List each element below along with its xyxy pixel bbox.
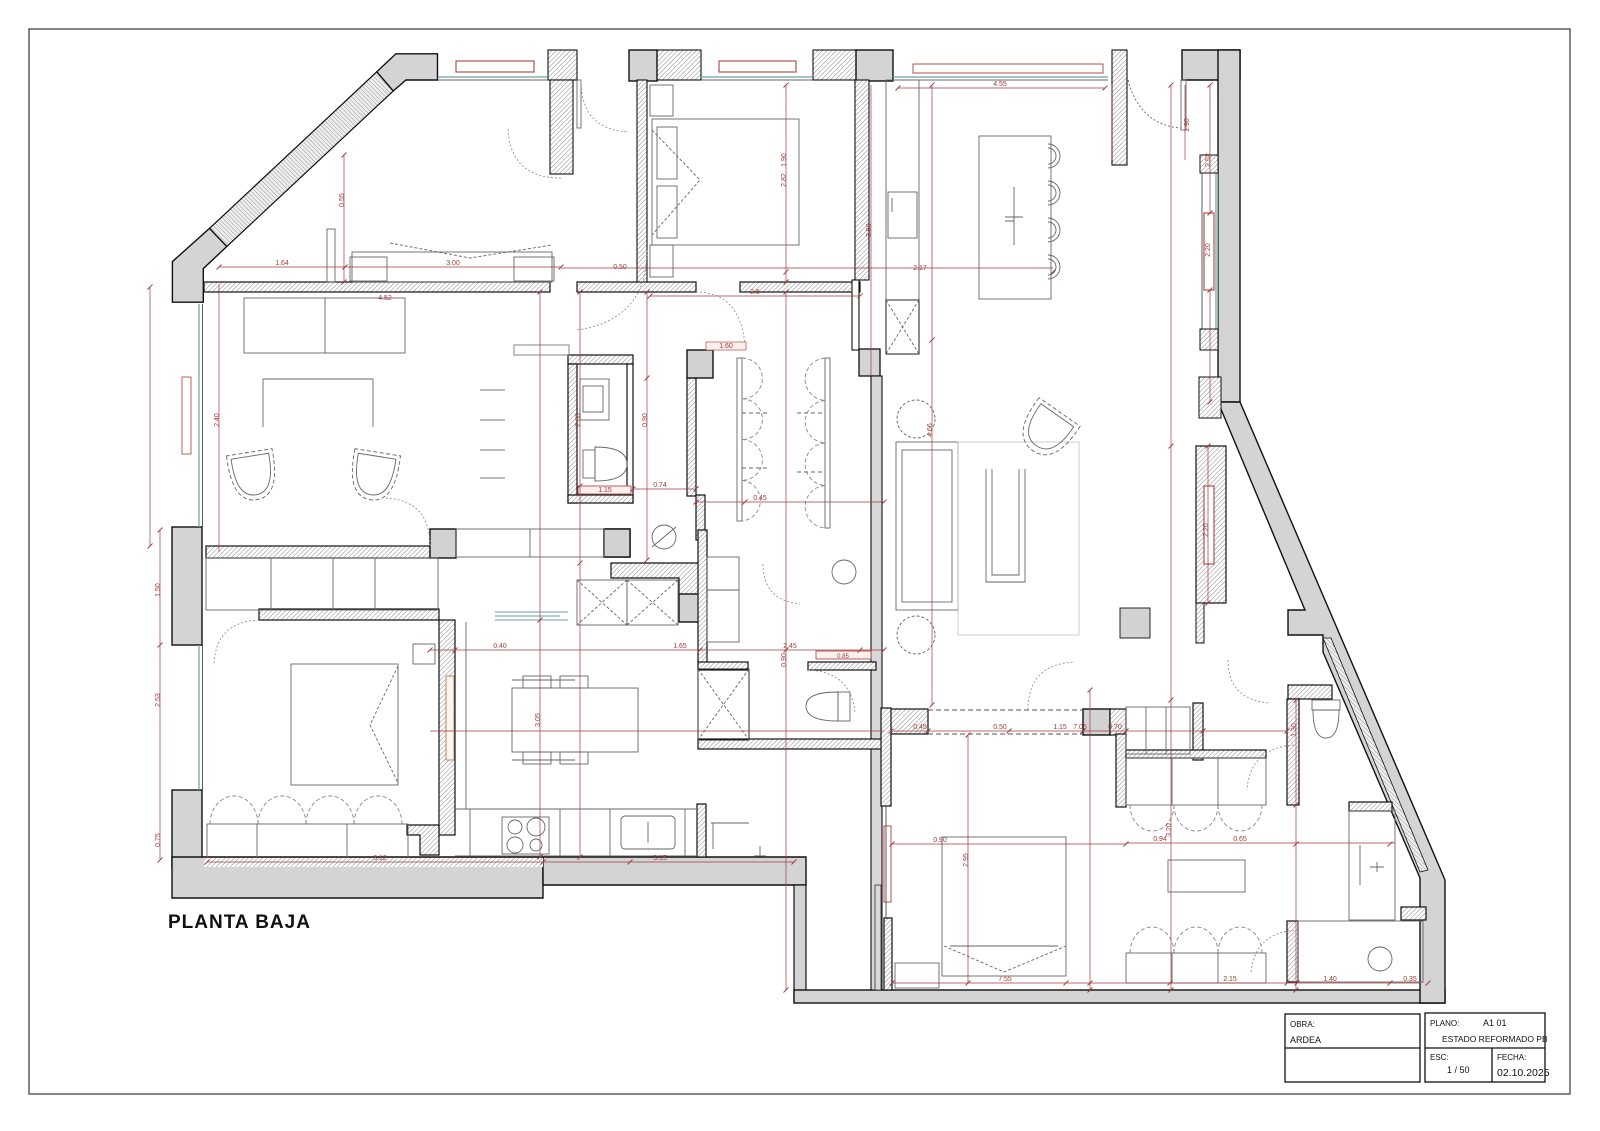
svg-text:2.20: 2.20 (1205, 243, 1212, 257)
svg-text:2.82: 2.82 (781, 173, 788, 187)
svg-text:3.15: 3.15 (653, 855, 667, 862)
svg-text:0.65: 0.65 (1233, 836, 1247, 843)
svg-text:0.45: 0.45 (753, 495, 767, 502)
svg-text:2.20: 2.20 (1203, 523, 1210, 537)
svg-text:2.53: 2.53 (155, 693, 162, 707)
svg-text:3.12: 3.12 (373, 855, 387, 862)
svg-text:1.90: 1.90 (781, 153, 788, 167)
svg-text:4.55: 4.55 (993, 81, 1007, 88)
svg-text:0.94: 0.94 (1153, 836, 1167, 843)
svg-text:0.50: 0.50 (613, 264, 627, 271)
svg-text:0.50: 0.50 (993, 724, 1007, 731)
svg-text:ESC:: ESC: (1430, 1053, 1449, 1062)
svg-text:FECHA:: FECHA: (1497, 1053, 1526, 1062)
svg-text:2.45: 2.45 (783, 643, 797, 650)
svg-text:ESTADO REFORMADO PB: ESTADO REFORMADO PB (1442, 1034, 1548, 1044)
svg-text:4.66: 4.66 (927, 423, 934, 437)
svg-text:2.40: 2.40 (214, 413, 221, 427)
svg-text:2.95: 2.95 (963, 853, 970, 867)
svg-text:3.05: 3.05 (535, 713, 542, 727)
svg-text:0.70: 0.70 (1108, 724, 1122, 731)
svg-text:0.55: 0.55 (339, 193, 346, 207)
svg-text:7.05: 7.05 (1073, 724, 1087, 731)
svg-text:2.17: 2.17 (913, 265, 927, 272)
svg-text:0.45: 0.45 (913, 724, 927, 731)
svg-text:PLANO:: PLANO: (1430, 1019, 1459, 1028)
svg-text:3.20: 3.20 (1166, 823, 1173, 837)
svg-text:1.65: 1.65 (673, 643, 687, 650)
svg-text:1.50: 1.50 (155, 583, 162, 597)
svg-text:0.90: 0.90 (642, 413, 649, 427)
svg-text:1.15: 1.15 (598, 487, 612, 494)
svg-text:3.00: 3.00 (446, 260, 460, 267)
svg-text:OBRA:: OBRA: (1290, 1020, 1315, 1029)
svg-text:1.30: 1.30 (1291, 723, 1298, 737)
svg-text:0.74: 0.74 (653, 482, 667, 489)
svg-text:A1 01: A1 01 (1483, 1018, 1507, 1028)
svg-text:7.55: 7.55 (998, 976, 1012, 983)
svg-text:1.15: 1.15 (1053, 724, 1067, 731)
svg-text:ARDEA: ARDEA (1290, 1035, 1321, 1045)
svg-text:0.40: 0.40 (493, 643, 507, 650)
svg-text:4.52: 4.52 (378, 295, 392, 302)
svg-text:0.85: 0.85 (837, 654, 849, 660)
svg-text:1.64: 1.64 (275, 260, 289, 267)
svg-text:2.63: 2.63 (575, 413, 582, 427)
svg-text:1 / 50: 1 / 50 (1447, 1065, 1470, 1075)
svg-text:1.60: 1.60 (719, 343, 733, 350)
svg-text:0.35: 0.35 (1403, 976, 1417, 983)
svg-text:2.15: 2.15 (1223, 976, 1237, 983)
svg-text:2.52: 2.52 (1205, 153, 1212, 167)
svg-text:02.10.2025: 02.10.2025 (1497, 1067, 1550, 1079)
svg-text:1.90: 1.90 (1184, 118, 1191, 132)
svg-text:3.50: 3.50 (866, 223, 873, 237)
svg-text:1.40: 1.40 (1323, 976, 1337, 983)
svg-text:2.5: 2.5 (750, 289, 760, 296)
svg-text:PLANTA BAJA: PLANTA BAJA (168, 912, 311, 933)
svg-text:0.90: 0.90 (781, 653, 788, 667)
svg-text:0.75: 0.75 (155, 833, 162, 847)
svg-text:0.90: 0.90 (933, 837, 947, 844)
